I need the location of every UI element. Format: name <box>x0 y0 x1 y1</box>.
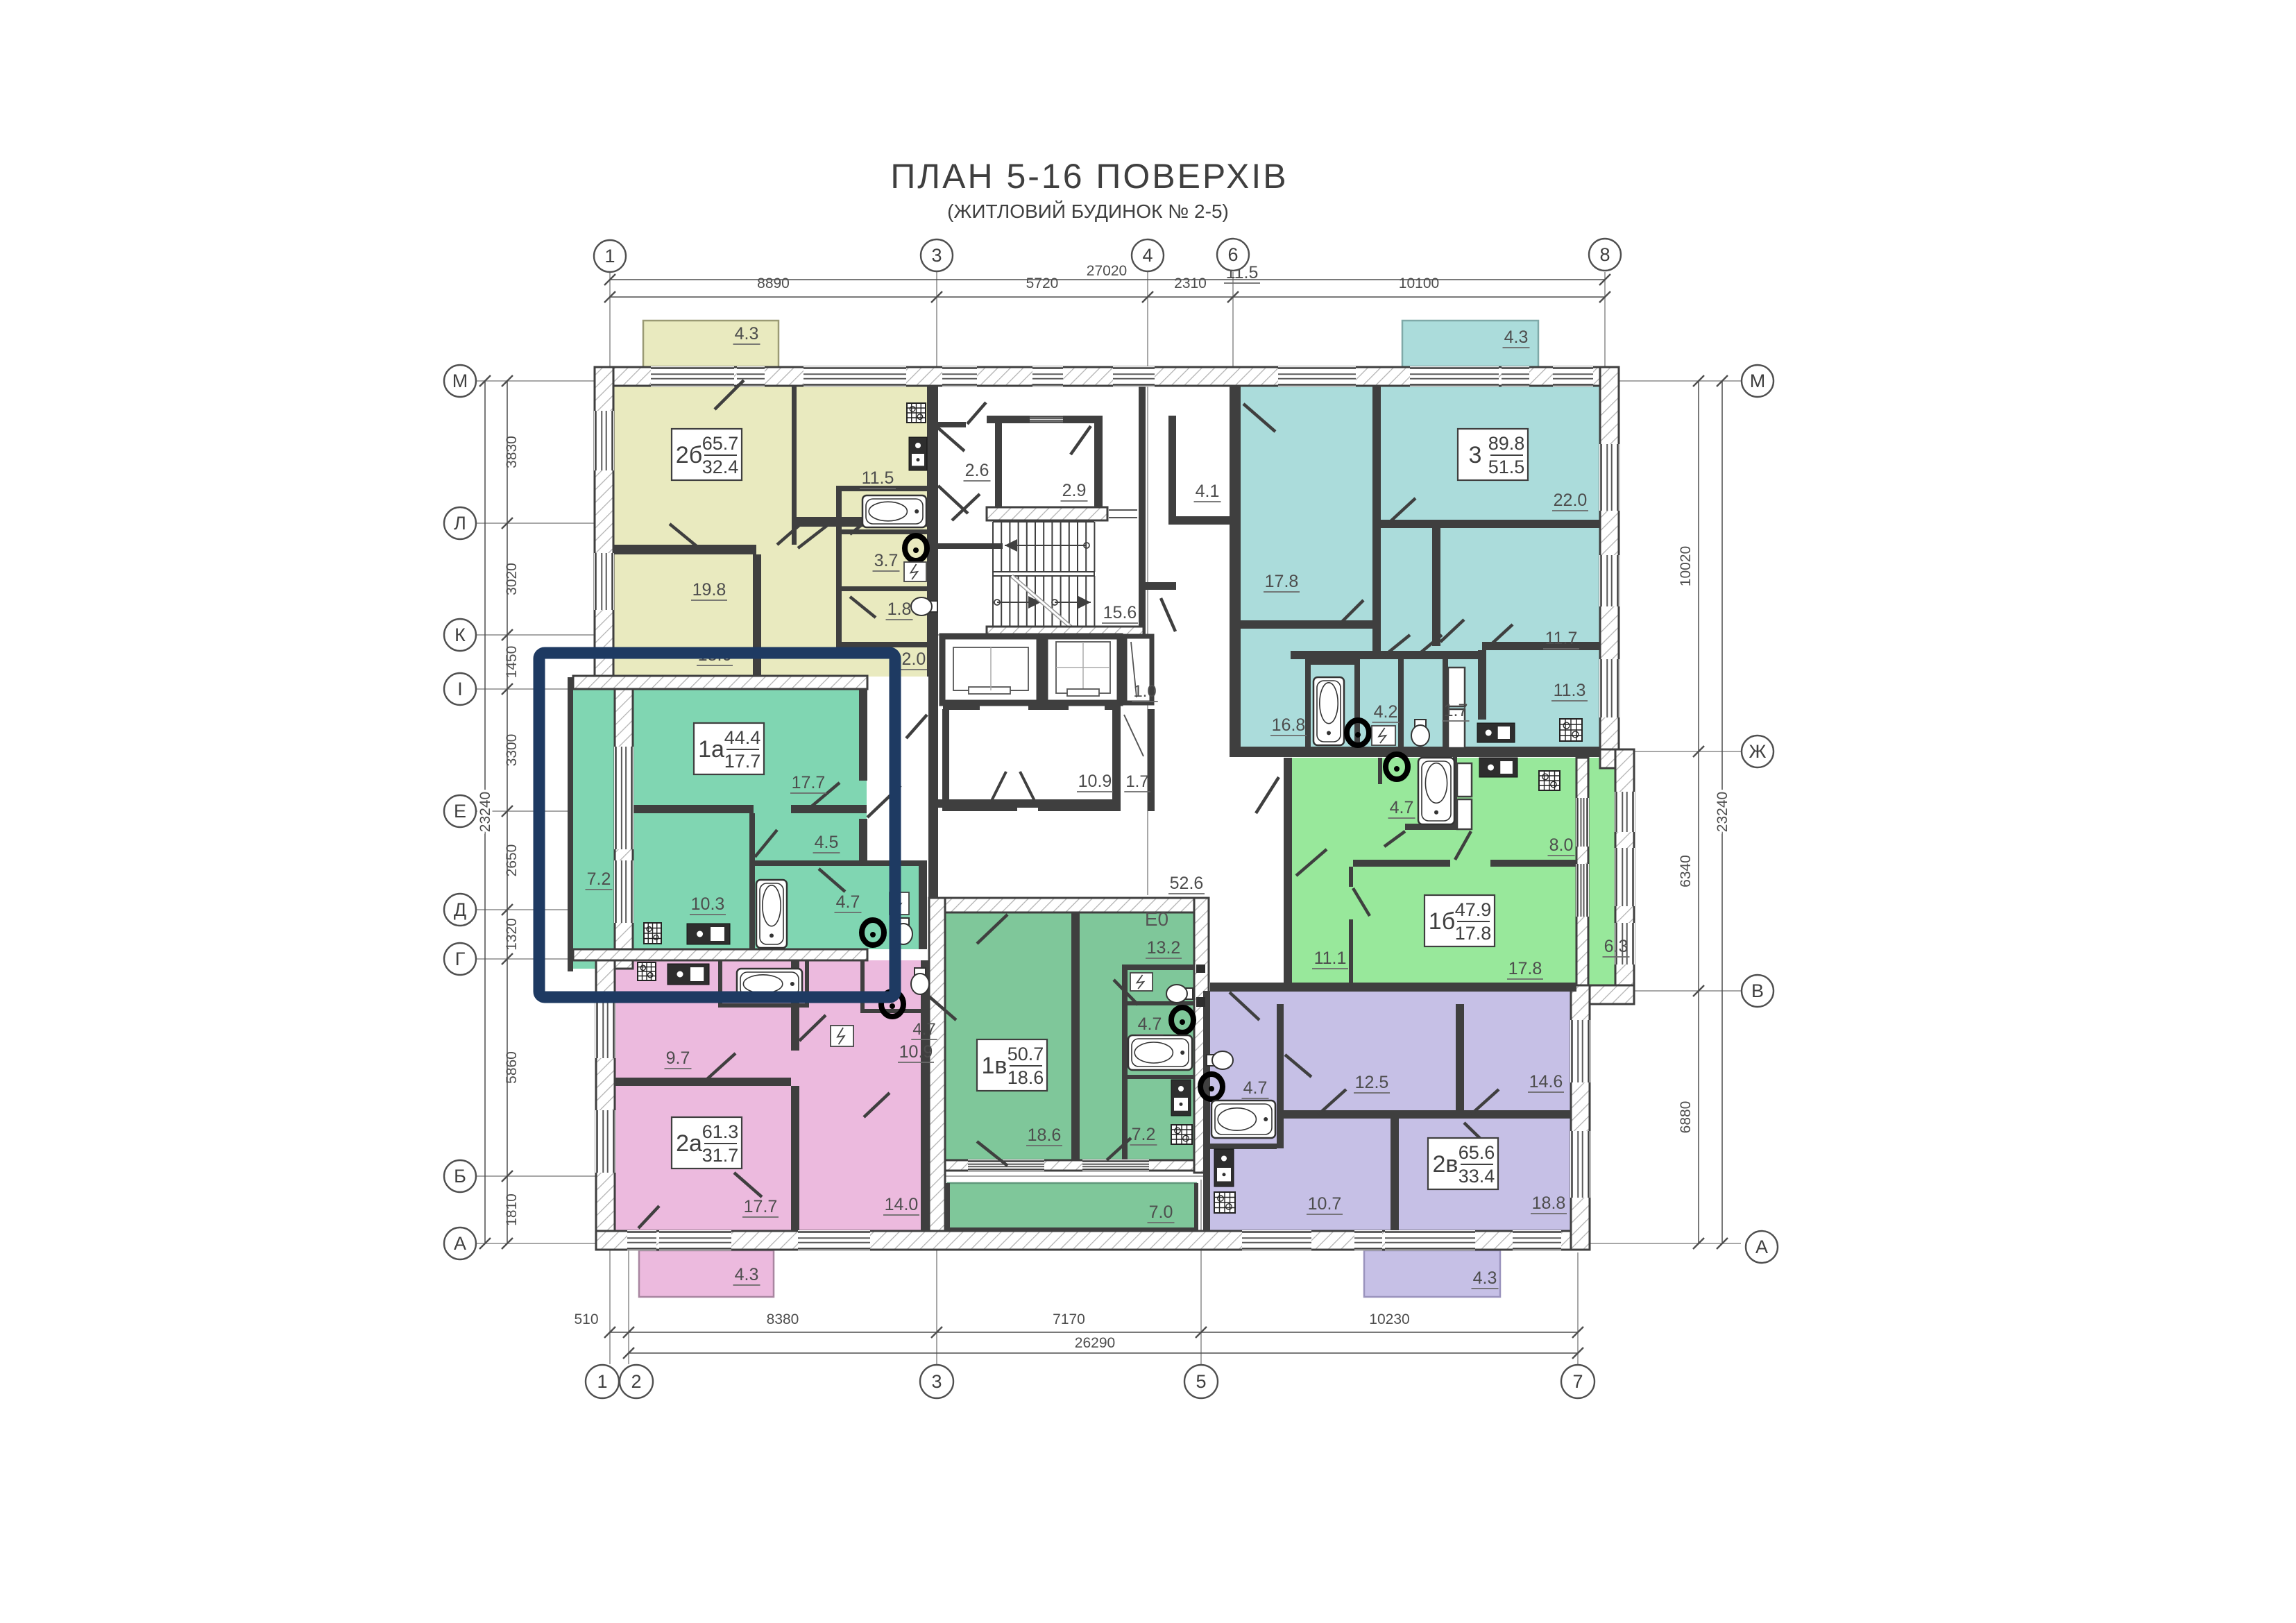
svg-text:1810: 1810 <box>504 1193 520 1226</box>
svg-text:2.6: 2.6 <box>965 461 989 480</box>
svg-text:27020: 27020 <box>1087 263 1127 279</box>
svg-text:4.7: 4.7 <box>1243 1078 1268 1098</box>
svg-text:18.6: 18.6 <box>1028 1125 1062 1145</box>
svg-text:4.3: 4.3 <box>1504 328 1529 347</box>
svg-text:13.2: 13.2 <box>1147 938 1181 958</box>
svg-text:Е0: Е0 <box>1145 908 1168 930</box>
svg-text:17.7: 17.7 <box>744 1197 778 1216</box>
svg-text:2: 2 <box>631 1371 641 1392</box>
svg-text:15.6: 15.6 <box>1103 603 1137 622</box>
svg-text:10.9: 10.9 <box>899 1042 933 1062</box>
svg-text:5860: 5860 <box>504 1051 520 1084</box>
svg-text:26290: 26290 <box>1075 1335 1115 1351</box>
svg-text:10100: 10100 <box>1399 275 1439 291</box>
svg-text:18.6: 18.6 <box>1007 1067 1044 1088</box>
svg-text:50.7: 50.7 <box>1007 1044 1044 1064</box>
svg-text:3: 3 <box>1469 442 1482 468</box>
svg-text:23240: 23240 <box>477 792 493 832</box>
svg-text:7.0: 7.0 <box>1149 1203 1173 1222</box>
svg-text:17.8: 17.8 <box>1455 923 1492 944</box>
svg-text:К: К <box>454 624 466 645</box>
svg-text:7: 7 <box>1572 1371 1583 1392</box>
svg-text:8.0: 8.0 <box>1549 835 1574 855</box>
svg-text:Г: Г <box>455 949 466 969</box>
svg-text:10.9: 10.9 <box>1078 772 1112 791</box>
svg-text:1б: 1б <box>1429 908 1455 935</box>
svg-text:17.8: 17.8 <box>1265 572 1299 591</box>
svg-text:44.4: 44.4 <box>724 727 761 748</box>
svg-text:11.5: 11.5 <box>862 468 894 488</box>
svg-text:4.3: 4.3 <box>735 324 759 343</box>
svg-text:8380: 8380 <box>767 1311 799 1327</box>
svg-text:47.9: 47.9 <box>1455 899 1492 920</box>
svg-text:17.8: 17.8 <box>1508 959 1542 978</box>
svg-text:23240: 23240 <box>1715 792 1730 832</box>
svg-text:3020: 3020 <box>504 563 520 595</box>
svg-text:5: 5 <box>1196 1371 1206 1392</box>
svg-text:М: М <box>452 371 468 391</box>
svg-text:16.8: 16.8 <box>1272 715 1306 735</box>
svg-text:4.5: 4.5 <box>815 833 839 852</box>
svg-text:12.5: 12.5 <box>1355 1073 1389 1092</box>
svg-text:31.7: 31.7 <box>702 1145 739 1166</box>
svg-text:1.0: 1.0 <box>1133 682 1156 701</box>
svg-text:(ЖИТЛОВИЙ БУДИНОК № 2-5): (ЖИТЛОВИЙ БУДИНОК № 2-5) <box>947 201 1229 222</box>
svg-text:17.7: 17.7 <box>724 751 761 772</box>
svg-text:В: В <box>1751 980 1764 1001</box>
svg-text:1: 1 <box>597 1371 607 1392</box>
svg-text:4.7: 4.7 <box>1138 1014 1162 1034</box>
svg-text:3.7: 3.7 <box>874 551 899 570</box>
svg-text:10020: 10020 <box>1678 546 1694 586</box>
svg-text:18.8: 18.8 <box>1532 1193 1566 1213</box>
svg-text:2310: 2310 <box>1174 275 1207 291</box>
svg-text:4.7: 4.7 <box>912 1020 935 1039</box>
svg-text:3: 3 <box>931 1371 942 1392</box>
svg-text:Б: Б <box>454 1166 466 1187</box>
svg-text:2650: 2650 <box>504 844 520 877</box>
svg-text:9.7: 9.7 <box>666 1048 690 1068</box>
svg-text:6: 6 <box>1227 244 1238 265</box>
svg-text:6.3: 6.3 <box>1604 937 1629 956</box>
svg-text:5720: 5720 <box>1026 275 1059 291</box>
svg-text:33.4: 33.4 <box>1459 1166 1495 1187</box>
svg-text:6880: 6880 <box>1678 1101 1694 1134</box>
svg-text:Ж: Ж <box>1749 741 1767 762</box>
svg-text:61.3: 61.3 <box>702 1121 739 1142</box>
svg-text:4.1: 4.1 <box>1196 482 1220 501</box>
svg-text:510: 510 <box>574 1311 598 1327</box>
svg-text:А: А <box>454 1233 466 1254</box>
svg-text:10.7: 10.7 <box>1308 1194 1342 1214</box>
svg-text:7.2: 7.2 <box>587 869 611 889</box>
svg-text:4.2: 4.2 <box>1374 702 1398 722</box>
svg-text:1.8: 1.8 <box>887 600 912 619</box>
svg-text:1а: 1а <box>698 736 724 763</box>
svg-text:Л: Л <box>454 513 466 534</box>
svg-text:3: 3 <box>931 245 942 266</box>
svg-text:2в: 2в <box>1433 1151 1459 1178</box>
svg-text:65.6: 65.6 <box>1459 1142 1495 1163</box>
svg-text:4.7: 4.7 <box>1390 798 1414 817</box>
svg-text:1.7: 1.7 <box>1125 772 1148 791</box>
svg-text:4.7: 4.7 <box>836 892 860 912</box>
svg-text:I: I <box>457 679 463 699</box>
svg-text:М: М <box>1750 371 1766 391</box>
svg-text:10230: 10230 <box>1369 1311 1409 1327</box>
svg-text:8: 8 <box>1599 244 1610 265</box>
svg-text:22.0: 22.0 <box>1554 491 1588 510</box>
svg-text:3300: 3300 <box>504 734 520 767</box>
svg-text:6340: 6340 <box>1678 855 1694 887</box>
svg-text:7170: 7170 <box>1053 1311 1085 1327</box>
svg-text:Е: Е <box>454 801 466 822</box>
svg-text:1.7: 1.7 <box>1444 701 1468 720</box>
svg-text:11.7: 11.7 <box>1545 629 1578 648</box>
svg-text:4.3: 4.3 <box>735 1265 759 1284</box>
svg-text:1в: 1в <box>982 1053 1007 1079</box>
svg-text:14.6: 14.6 <box>1529 1072 1563 1091</box>
svg-text:1450: 1450 <box>504 646 520 679</box>
svg-text:52.6: 52.6 <box>1170 874 1204 893</box>
svg-text:8890: 8890 <box>757 275 790 291</box>
svg-text:1320: 1320 <box>504 918 520 951</box>
svg-text:3830: 3830 <box>504 436 520 468</box>
svg-text:2б: 2б <box>676 442 702 468</box>
svg-text:А: А <box>1755 1237 1768 1257</box>
svg-text:32.4: 32.4 <box>702 457 739 477</box>
svg-text:17.7: 17.7 <box>792 773 826 792</box>
svg-text:2.9: 2.9 <box>1062 481 1087 500</box>
svg-text:Д: Д <box>454 899 466 920</box>
svg-text:14.0: 14.0 <box>885 1195 919 1214</box>
svg-text:51.5: 51.5 <box>1488 457 1525 477</box>
svg-text:4.3: 4.3 <box>1473 1268 1497 1288</box>
svg-text:ПЛАН 5-16 ПОВЕРХІВ: ПЛАН 5-16 ПОВЕРХІВ <box>890 157 1288 196</box>
svg-text:65.7: 65.7 <box>702 433 739 454</box>
svg-text:11.3: 11.3 <box>1554 681 1586 700</box>
svg-text:2а: 2а <box>676 1130 702 1157</box>
svg-text:4: 4 <box>1142 245 1153 266</box>
svg-text:19.8: 19.8 <box>692 580 726 600</box>
svg-text:1: 1 <box>604 246 615 266</box>
svg-text:10.3: 10.3 <box>691 894 725 914</box>
svg-text:7.2: 7.2 <box>1132 1125 1156 1144</box>
svg-text:89.8: 89.8 <box>1488 433 1525 454</box>
svg-text:11.1: 11.1 <box>1314 949 1347 968</box>
